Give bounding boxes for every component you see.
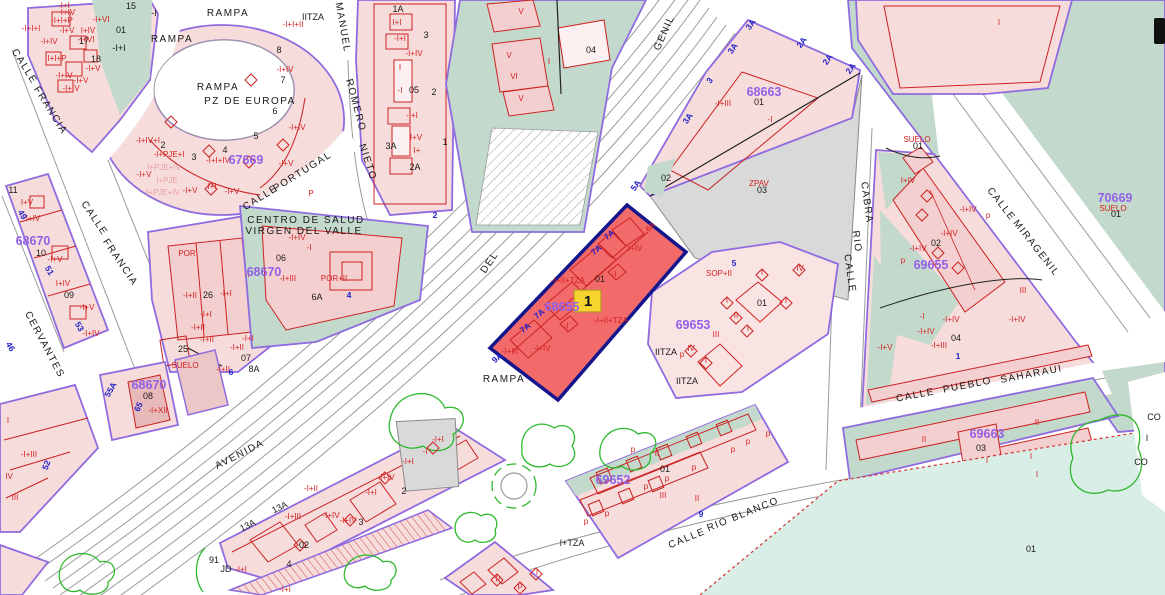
map-label: -I+III [931, 341, 947, 350]
parking-area [396, 419, 459, 492]
map-label: -I+II [230, 343, 244, 352]
map-label: I+IV [81, 26, 96, 35]
map-label: IITZA [655, 347, 677, 357]
map-label: 25 [178, 344, 188, 354]
map-label: I+PJE+IV [147, 163, 181, 172]
map-label: 05 [409, 85, 419, 95]
map-label: -I+V [183, 186, 199, 195]
map-label: I [726, 296, 728, 305]
map-label: 8 [276, 45, 281, 55]
map-label: -I+V [86, 64, 102, 73]
map-label: -I+I [365, 488, 377, 497]
map-label: 1 [956, 351, 961, 361]
map-label: SOP+II [706, 269, 732, 278]
map-label: SUELO [171, 361, 198, 370]
block-number-label: 70669 [1098, 191, 1133, 205]
map-label: -I+II [183, 291, 197, 300]
map-label: III [1020, 286, 1027, 295]
map-label: 06 [276, 253, 286, 263]
map-label: -I+II+TZA [594, 316, 628, 325]
map-label: I+I [207, 182, 216, 191]
map-label: -I+IV [405, 49, 423, 58]
block-number-label: 68670 [247, 265, 282, 279]
map-label: 5 [253, 131, 258, 141]
map-label: IV [5, 472, 13, 481]
map-label: JD [221, 564, 233, 574]
block-number-label: 69663 [970, 427, 1005, 441]
map-label: 01 [116, 25, 126, 35]
map-label: -I+IV [959, 205, 977, 214]
map-label: p [986, 211, 991, 220]
map-label: POR [178, 249, 196, 258]
map-label: -I+I [394, 34, 406, 43]
map-label: 2A [409, 162, 420, 172]
map-label: 3A [385, 141, 396, 151]
map-label: p [644, 482, 649, 491]
block-number-label: 69655 [914, 258, 949, 272]
map-label: -I+II [200, 335, 214, 344]
map-label: 01 [1026, 544, 1036, 554]
map-label: 4 [222, 145, 227, 155]
map-label: -I+I [402, 457, 414, 466]
map-label: I [399, 63, 401, 72]
map-label: -I+VI [77, 35, 94, 44]
map-label: V [506, 51, 512, 60]
map-label: II [734, 311, 738, 320]
map-label: -I+V [279, 159, 295, 168]
map-label: -I+IV [322, 511, 340, 520]
map-label: -I+III [502, 347, 518, 356]
block-number-label: 68670 [132, 378, 167, 392]
map-label: 6 [272, 106, 277, 116]
map-label: -I+I [432, 435, 444, 444]
map-label: 18 [91, 54, 101, 64]
map-label: 91 [209, 555, 219, 565]
map-label: 15 [126, 1, 136, 11]
map-label: I+V [21, 198, 34, 207]
map-label: -I+III [715, 99, 731, 108]
map-label: -I+PJE+I [153, 150, 184, 159]
map-label: -I+I [279, 585, 291, 594]
map-label: -I [564, 322, 569, 331]
map-label: -I+IV [377, 473, 395, 482]
map-label: -I+IV [82, 329, 100, 338]
map-label: 02 [661, 173, 671, 183]
map-label: 01 [660, 464, 670, 474]
map-label: 1A [392, 4, 403, 14]
map-label: 01 [595, 274, 605, 284]
map-label: -I+XII [148, 406, 167, 415]
map-label: -I+II [304, 484, 318, 493]
block-number-label: 68663 [747, 85, 782, 99]
map-label: 1 [442, 137, 447, 147]
map-label: IITZA [676, 376, 698, 386]
map-label: I+TZA [560, 538, 585, 548]
map-label: -I+IV [55, 71, 73, 80]
map-label: 10 [36, 248, 46, 258]
map-label: p [605, 509, 610, 518]
block-number-label: 67669 [229, 153, 264, 167]
map-label: p [680, 350, 685, 359]
map-label: -I+IV [942, 315, 960, 324]
map-label: VI [510, 72, 518, 81]
map-label: I+I+P [47, 54, 66, 63]
map-label: -I+I+IV [206, 156, 231, 165]
block-number-label: 69652 [596, 473, 631, 487]
map-label: -I+V [60, 26, 76, 35]
map-label: 6A [311, 292, 322, 302]
map-label: -I+V [80, 303, 96, 312]
map-label: p [746, 437, 751, 446]
map-label: 3 [423, 30, 428, 40]
map-label: I [1030, 452, 1032, 461]
map-label: -I [151, 8, 157, 18]
map-label: SUELO [1099, 204, 1126, 213]
cadastral-map[interactable]: 1 RAMPARAMPARAMPAPZ DE EUROPACALLEFRANCI… [0, 0, 1165, 595]
map-label: -I+II [191, 323, 205, 332]
map-label: -I [423, 447, 428, 456]
map-label: 6 [229, 367, 234, 377]
map-label: POR+II [321, 274, 347, 283]
street-name-label: CENTRO DE SALUD [247, 215, 365, 226]
map-label: I [536, 568, 538, 577]
street-name-label: RAMPA [207, 8, 249, 19]
map-label: -I+IV [62, 84, 80, 93]
map-label: -I+I [406, 111, 418, 120]
map-label: p [665, 474, 670, 483]
map-label: 3 [191, 152, 196, 162]
map-label: I [705, 356, 707, 365]
map-label: II [1035, 418, 1039, 427]
map-label: 07 [241, 353, 251, 363]
map-label: 7 [280, 75, 285, 85]
paved-hatch-area [476, 128, 598, 225]
map-label: p [496, 573, 501, 582]
map-label: -I+III [285, 512, 301, 521]
map-label: 11 [8, 185, 17, 195]
map-label: -I [768, 115, 773, 124]
map-label: III [713, 330, 720, 339]
map-label: 02 [299, 540, 309, 550]
map-label: 8A [248, 364, 259, 374]
map-label: I [548, 57, 550, 66]
map-label: p [731, 445, 736, 454]
map-label: I [1036, 470, 1038, 479]
map-label: -I+V [225, 187, 241, 196]
map-label: 01 [757, 298, 767, 308]
street-name-label: PZ DE EUROPA [204, 96, 296, 107]
map-label: II [655, 449, 659, 458]
map-label: 2 [401, 486, 406, 496]
map-label: -I+I [220, 289, 232, 298]
cadastral-map-viewport[interactable]: 1 RAMPARAMPARAMPAPZ DE EUROPACALLEFRANCI… [0, 0, 1165, 595]
map-label: 04 [586, 45, 596, 55]
map-label: p [692, 463, 697, 472]
map-label: 5 [732, 258, 737, 268]
map-label: -I+IV [533, 344, 551, 353]
map-label: 4 [347, 290, 352, 300]
map-label: I+PJE [156, 176, 178, 185]
map-label: II [922, 435, 926, 444]
map-label: I [1146, 433, 1149, 443]
street-name-label: RAMPA [151, 34, 193, 45]
map-label: 2 [160, 140, 165, 150]
map-label: p [766, 429, 771, 438]
map-label: I+IV [56, 279, 71, 288]
map-label: 26 [203, 290, 213, 300]
map-label: -I+IV [909, 244, 927, 253]
map-label: 9 [699, 509, 704, 519]
map-label: p [584, 517, 589, 526]
map-label: -I+IV [40, 37, 58, 46]
map-label: CO [1147, 412, 1161, 422]
map-label: -I+I+I [22, 24, 41, 33]
map-label: 4 [286, 559, 291, 569]
map-label: I+I [392, 18, 401, 27]
map-label: IV [796, 264, 804, 273]
map-label: IITZA [302, 12, 324, 22]
map-label: -I+I+P [51, 16, 73, 25]
map-label: 09 [64, 290, 74, 300]
map-label: SUELO [903, 135, 930, 144]
map-label: 2 [431, 87, 436, 97]
map-label: 04 [951, 333, 961, 343]
map-label: -I+IV [940, 229, 958, 238]
map-label: V [518, 7, 524, 16]
map-label: I+IV [901, 176, 916, 185]
block-number-label: 68655 [545, 300, 580, 314]
map-label: I [998, 18, 1000, 27]
map-label: -I+IV+I [136, 136, 160, 145]
map-label: 03 [976, 443, 986, 453]
map-label: -I+I [200, 310, 212, 319]
map-label: -I+VI [92, 15, 109, 24]
map-label: 08 [143, 391, 153, 401]
map-label: 02 [931, 238, 941, 248]
map-label: p [518, 581, 523, 590]
map-label: -I [920, 312, 925, 321]
block-number-label: 69653 [676, 318, 711, 332]
map-label: -I+I [112, 43, 125, 53]
map-label: -I+IV [276, 65, 294, 74]
map-label: -I [398, 86, 403, 95]
map-label: -I+IV [917, 327, 935, 336]
map-label: I+IV [628, 244, 643, 253]
map-label: -I+III [21, 450, 37, 459]
map-label: -I+III [280, 274, 296, 283]
map-label: V [518, 94, 524, 103]
map-label: -I [612, 270, 617, 279]
roundabout [501, 473, 527, 499]
map-label: II [695, 494, 699, 503]
map-label: III [660, 491, 667, 500]
map-label: -I+I [242, 334, 254, 343]
map-label: -I+IV [339, 516, 357, 525]
map-label: -I+I [235, 565, 247, 574]
scrollbar-fragment[interactable] [1154, 18, 1165, 44]
map-label: III [12, 493, 19, 502]
map-label: -I+V [878, 343, 894, 352]
map-label: ZPAV [749, 179, 769, 188]
map-label: -I [307, 243, 312, 252]
map-label: I [986, 456, 988, 465]
map-label: -I+V [48, 255, 64, 264]
map-label: I+V [410, 133, 423, 142]
map-label: I [785, 296, 787, 305]
map-label: 2 [433, 210, 438, 220]
street-name-label: RAMPA [483, 374, 525, 385]
map-label: p [901, 256, 906, 265]
map-label: p [631, 445, 636, 454]
map-label: IV [687, 344, 695, 353]
map-label: -I+II+TZA [551, 276, 585, 285]
street-name-label: RAMPA [197, 82, 239, 93]
highlight-marker-label: 1 [584, 293, 592, 310]
map-label: CO [1134, 457, 1148, 467]
map-label: P [308, 189, 313, 198]
map-label: I [7, 416, 9, 425]
map-label: -I+IV [1008, 315, 1026, 324]
map-label: -I+I+II [283, 20, 304, 29]
map-label: I+ [414, 146, 421, 155]
map-label: -I+IV [288, 123, 306, 132]
block-number-label: 68670 [16, 234, 51, 248]
map-label: I [761, 268, 763, 277]
map-label: I+PJE+IV [146, 188, 180, 197]
map-label: I [747, 324, 749, 333]
map-label: 3 [358, 517, 363, 527]
map-label: -I+IV [288, 233, 306, 242]
block-top-right-building[interactable] [856, 0, 1072, 94]
